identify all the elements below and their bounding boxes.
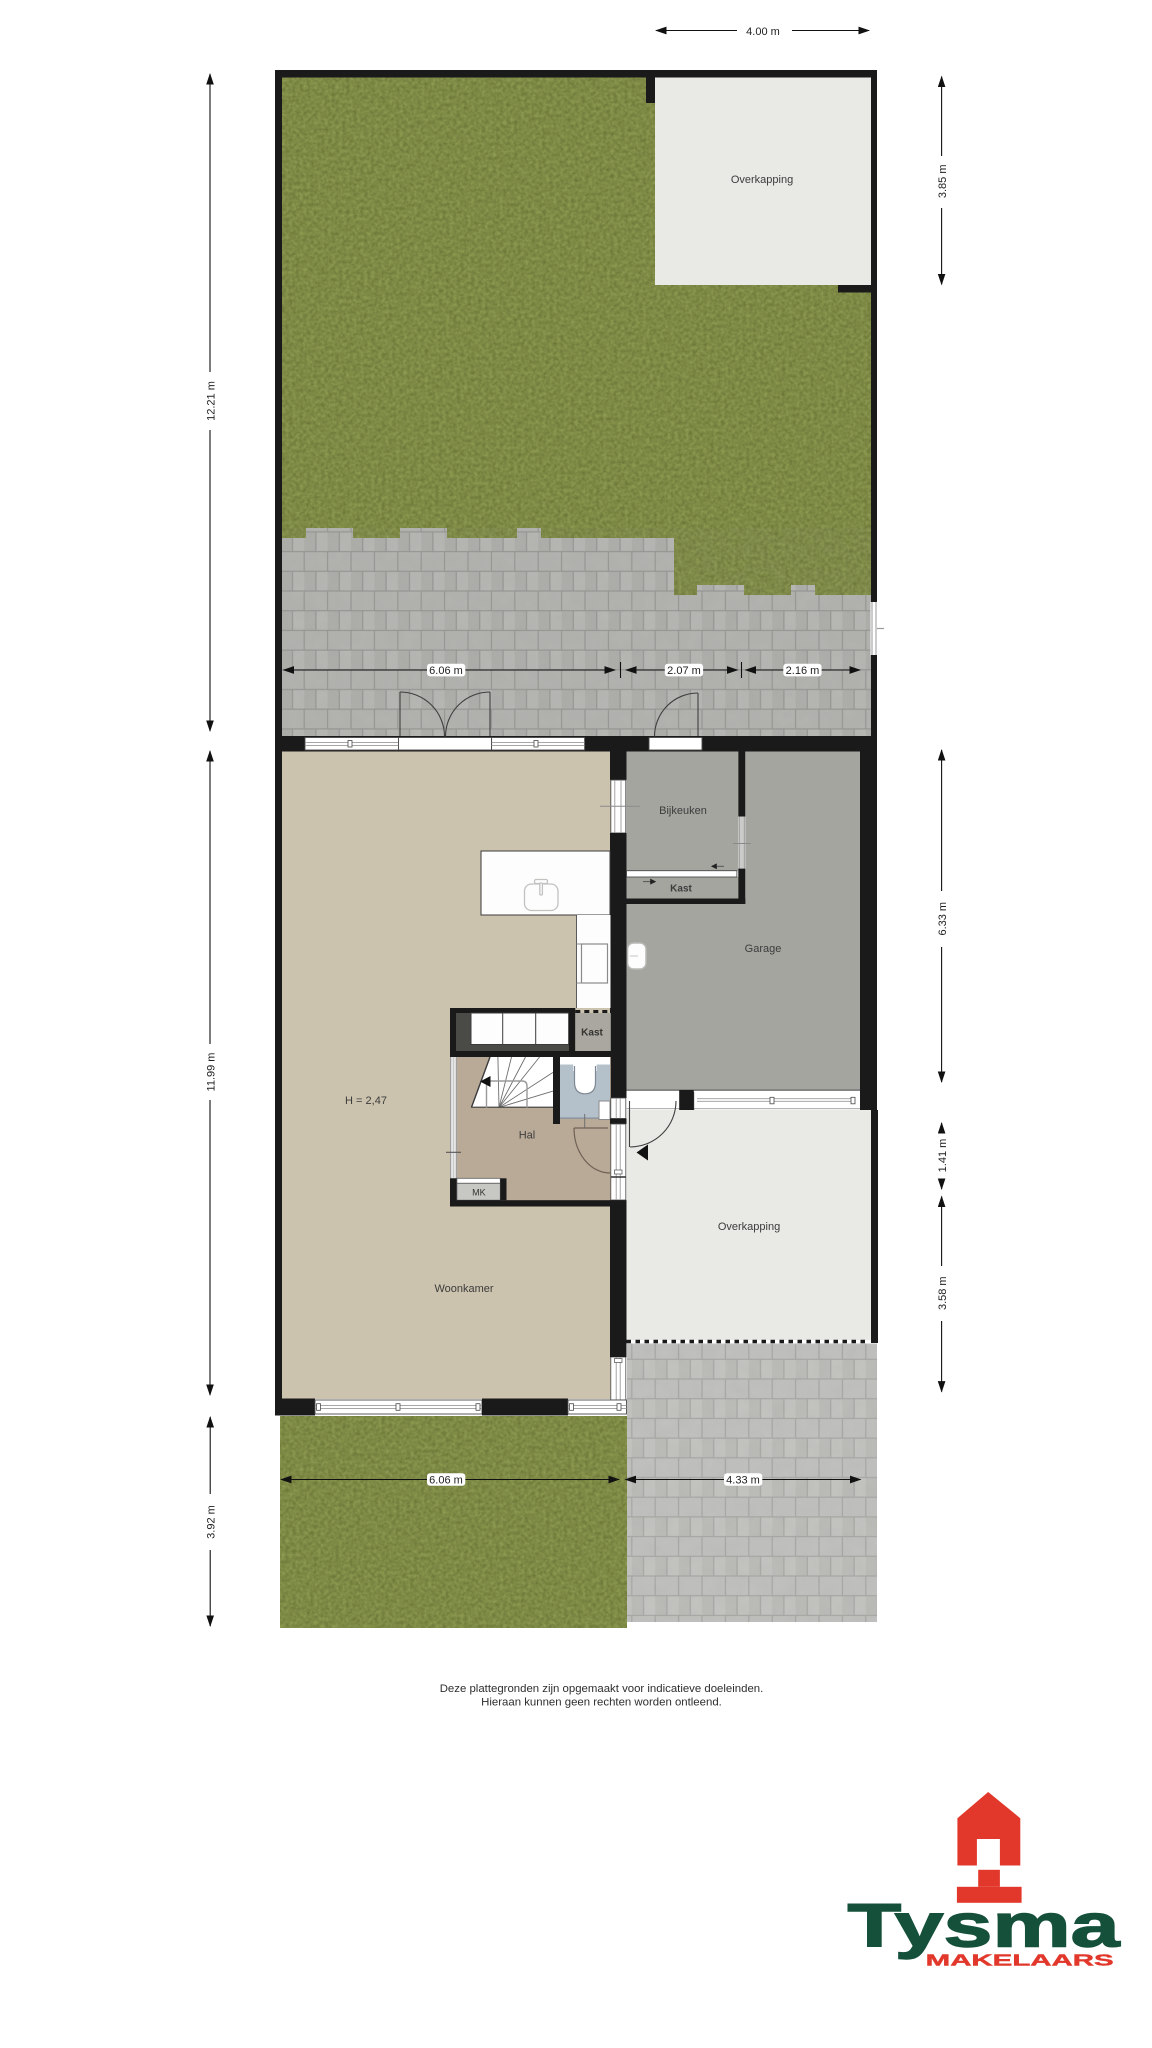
svg-text:Hieraan kunnen geen rechten wo: Hieraan kunnen geen rechten worden ontle… <box>481 1697 722 1709</box>
svg-text:H = 2,47: H = 2,47 <box>345 1095 387 1107</box>
svg-text:MK: MK <box>472 1188 486 1198</box>
svg-text:2.07 m: 2.07 m <box>667 665 701 677</box>
svg-text:Woonkamer: Woonkamer <box>434 1283 493 1295</box>
svg-text:4.33 m: 4.33 m <box>726 1474 760 1486</box>
svg-text:Kast: Kast <box>581 1028 603 1039</box>
svg-text:Deze plattegronden zijn opgema: Deze plattegronden zijn opgemaakt voor i… <box>440 1683 764 1695</box>
svg-text:4.00 m: 4.00 m <box>746 26 780 38</box>
svg-text:Overkapping: Overkapping <box>718 1221 780 1233</box>
svg-text:6.06 m: 6.06 m <box>429 665 463 677</box>
svg-text:Bijkeuken: Bijkeuken <box>659 805 707 817</box>
svg-text:Overkapping: Overkapping <box>731 174 793 186</box>
svg-text:Tysma: Tysma <box>848 1892 1122 1960</box>
svg-text:2.16 m: 2.16 m <box>786 665 820 677</box>
svg-text:6.33 m: 6.33 m <box>937 902 949 936</box>
svg-text:Garage: Garage <box>745 943 782 955</box>
svg-text:3.92 m: 3.92 m <box>206 1505 218 1539</box>
svg-text:3.58 m: 3.58 m <box>937 1276 949 1310</box>
svg-text:3.85 m: 3.85 m <box>937 164 949 198</box>
svg-text:Hal: Hal <box>519 1129 536 1141</box>
svg-text:1.41 m: 1.41 m <box>937 1139 949 1173</box>
svg-text:6.06 m: 6.06 m <box>429 1474 463 1486</box>
svg-text:Kast: Kast <box>670 884 692 895</box>
svg-text:12.21 m: 12.21 m <box>206 381 218 421</box>
svg-text:11.99 m: 11.99 m <box>206 1053 218 1092</box>
svg-text:MAKELAARS: MAKELAARS <box>926 1952 1114 1969</box>
